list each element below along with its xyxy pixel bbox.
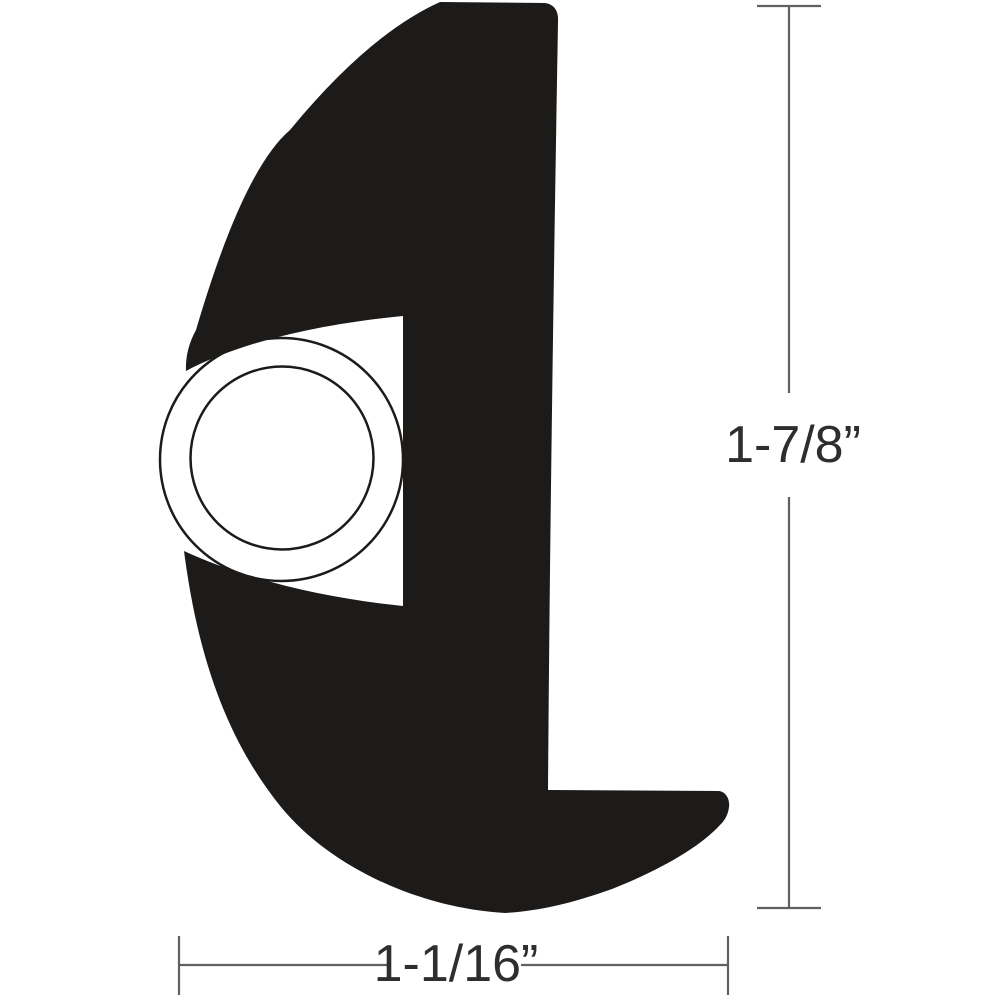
- width-dimension-label: 1-1/16”: [374, 935, 539, 993]
- tube-channel-circles: [160, 338, 403, 581]
- profile-dimension-diagram: 1-7/8” 1-1/16”: [0, 0, 1000, 1000]
- diagram-canvas: 1-7/8” 1-1/16”: [0, 0, 1000, 1000]
- tube-inner-circle: [191, 367, 374, 550]
- height-dimension-label: 1-7/8”: [725, 416, 861, 474]
- tube-outer-circle: [160, 338, 403, 581]
- profile-cross-section: [184, 2, 729, 913]
